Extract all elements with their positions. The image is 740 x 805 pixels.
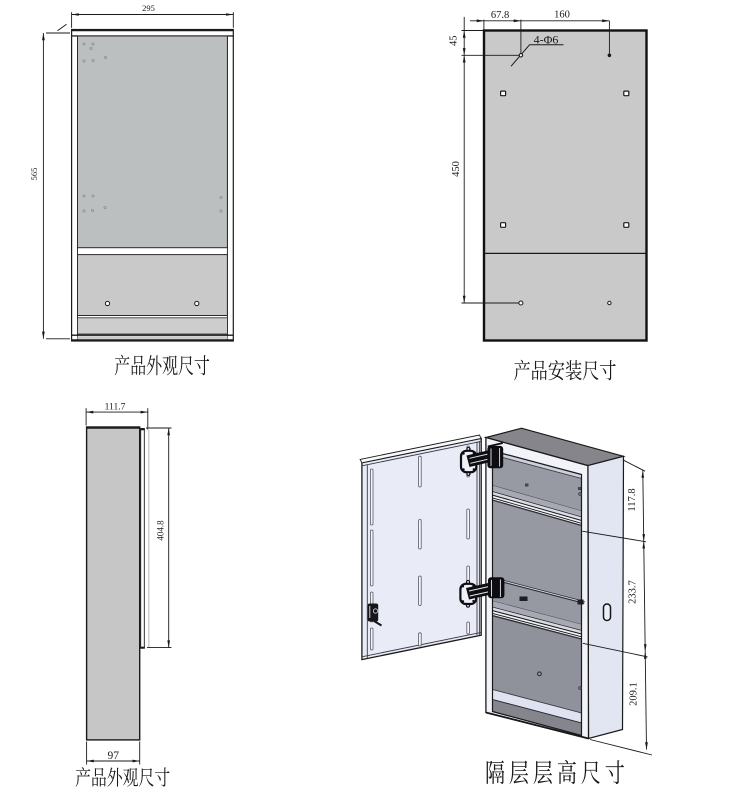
svg-text:404.8: 404.8 bbox=[156, 520, 166, 541]
svg-text:565: 565 bbox=[29, 168, 39, 181]
svg-text:295: 295 bbox=[142, 3, 155, 13]
svg-text:209.1: 209.1 bbox=[628, 682, 639, 706]
svg-text:450: 450 bbox=[451, 161, 462, 177]
svg-text:117.8: 117.8 bbox=[627, 488, 638, 511]
svg-text:111.7: 111.7 bbox=[105, 403, 126, 413]
svg-text:45: 45 bbox=[449, 36, 460, 47]
svg-text:160: 160 bbox=[554, 10, 570, 21]
svg-text:67.8: 67.8 bbox=[491, 10, 509, 21]
svg-text:233.7: 233.7 bbox=[627, 580, 638, 604]
svg-text:4-Φ6: 4-Φ6 bbox=[534, 32, 559, 46]
svg-text:97: 97 bbox=[108, 750, 120, 762]
